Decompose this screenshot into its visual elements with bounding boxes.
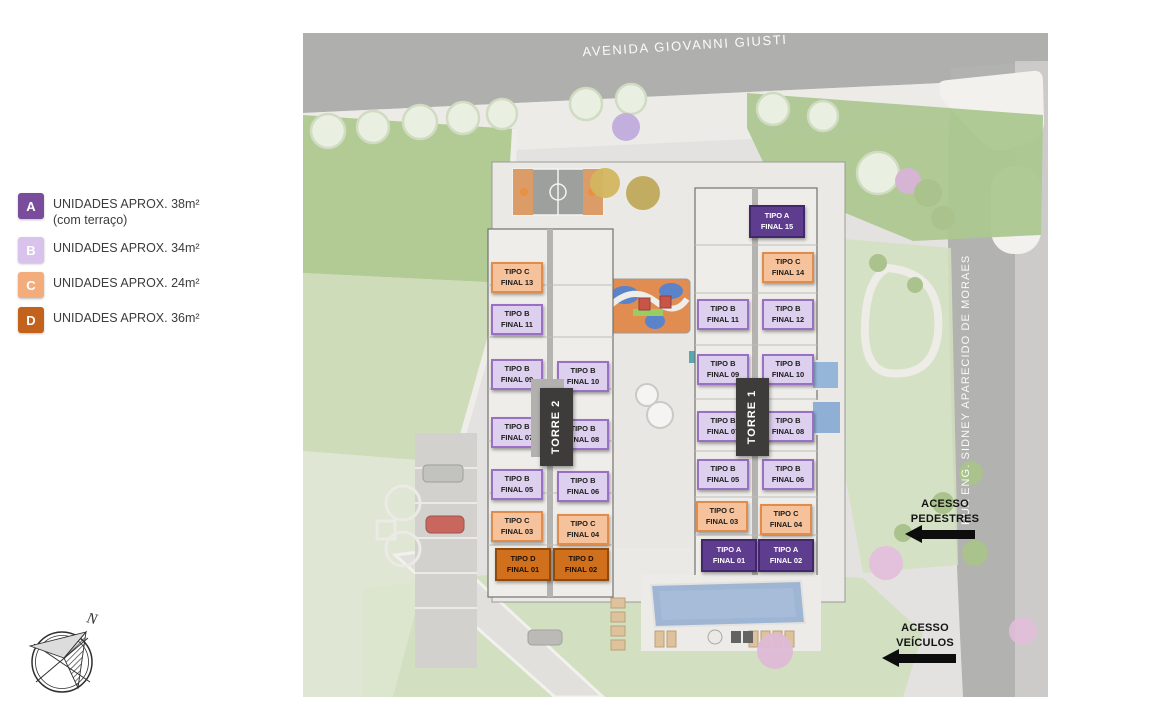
- unit-label-t1-final10: TIPO BFINAL 10: [762, 354, 814, 385]
- site-plan-base: [303, 33, 1048, 697]
- access-pedestres-label: ACESSOPEDESTRES: [899, 497, 991, 528]
- unit-label-t1-final01: TIPO AFINAL 01: [701, 539, 757, 572]
- unit-label-t1-final05: TIPO BFINAL 05: [697, 459, 749, 490]
- unit-label-t2-final13: TIPO CFINAL 13: [491, 262, 543, 293]
- unit-label-t1-final08: TIPO BFINAL 08: [762, 411, 814, 442]
- unit-label-t1-final14: TIPO CFINAL 14: [762, 252, 814, 283]
- unit-label-t2-final03: TIPO CFINAL 03: [491, 511, 543, 542]
- legend-label-a-sub: (com terraço): [53, 213, 200, 229]
- legend-row-b: B UNIDADES APROX. 34m²: [18, 237, 200, 263]
- legend-row-a: A UNIDADES APROX. 38m² (com terraço): [18, 193, 200, 228]
- access-pedestres-arrow-icon: [905, 525, 975, 543]
- unit-label-t1-final15: TIPO AFINAL 15: [749, 205, 805, 238]
- unit-label-t2-final05: TIPO BFINAL 05: [491, 469, 543, 500]
- legend-label-c: UNIDADES APROX. 24m²: [53, 272, 200, 292]
- legend-row-c: C UNIDADES APROX. 24m²: [18, 272, 200, 298]
- unit-label-t2-final01: TIPO DFINAL 01: [495, 548, 551, 581]
- unit-label-t2-final11: TIPO BFINAL 11: [491, 304, 543, 335]
- legend-label-a-text: UNIDADES APROX. 38m²: [53, 197, 200, 211]
- legend-swatch-d: D: [18, 307, 44, 333]
- legend-label-b-text: UNIDADES APROX. 34m²: [53, 241, 200, 255]
- legend: A UNIDADES APROX. 38m² (com terraço) B U…: [18, 193, 200, 333]
- torre2-banner-label: TORRE 2: [551, 400, 563, 454]
- access-veiculos-label: ACESSOVEÍCULOS: [879, 621, 971, 652]
- unit-label-t2-final02: TIPO DFINAL 02: [553, 548, 609, 581]
- unit-label-t2-final04: TIPO CFINAL 04: [557, 514, 609, 545]
- legend-label-d: UNIDADES APROX. 36m²: [53, 307, 200, 327]
- site-plan-map: AVENIDA GIOVANNI GIUSTI RUA ENG. SIDNEY …: [303, 33, 1048, 697]
- torre1-banner-label: TORRE 1: [747, 390, 759, 444]
- legend-swatch-b: B: [18, 237, 44, 263]
- street-name-rua: RUA ENG. SIDNEY APARECIDO DE MORAES: [960, 235, 972, 525]
- unit-label-t2-final06: TIPO BFINAL 06: [557, 471, 609, 502]
- legend-swatch-a: A: [18, 193, 44, 219]
- legend-swatch-c: C: [18, 272, 44, 298]
- compass-north-label: N: [84, 610, 100, 628]
- access-veiculos-arrow-icon: [882, 649, 956, 667]
- masterplan-page: A UNIDADES APROX. 38m² (com terraço) B U…: [0, 0, 1170, 710]
- legend-row-d: D UNIDADES APROX. 36m²: [18, 307, 200, 333]
- compass-rose: N: [22, 604, 106, 700]
- unit-label-t1-final12: TIPO BFINAL 12: [762, 299, 814, 330]
- torre1-banner: TORRE 1: [736, 378, 769, 456]
- unit-label-t1-final04: TIPO CFINAL 04: [760, 504, 812, 535]
- unit-label-t1-final06: TIPO BFINAL 06: [762, 459, 814, 490]
- torre2-banner: TORRE 2: [540, 388, 573, 466]
- fade-overlay: [303, 33, 1048, 697]
- legend-label-b: UNIDADES APROX. 34m²: [53, 237, 200, 257]
- legend-label-d-text: UNIDADES APROX. 36m²: [53, 311, 200, 325]
- legend-label-c-text: UNIDADES APROX. 24m²: [53, 276, 200, 290]
- legend-label-a: UNIDADES APROX. 38m² (com terraço): [53, 193, 200, 228]
- unit-label-t1-final03: TIPO CFINAL 03: [696, 501, 748, 532]
- unit-label-t1-final11: TIPO BFINAL 11: [697, 299, 749, 330]
- unit-label-t1-final02: TIPO AFINAL 02: [758, 539, 814, 572]
